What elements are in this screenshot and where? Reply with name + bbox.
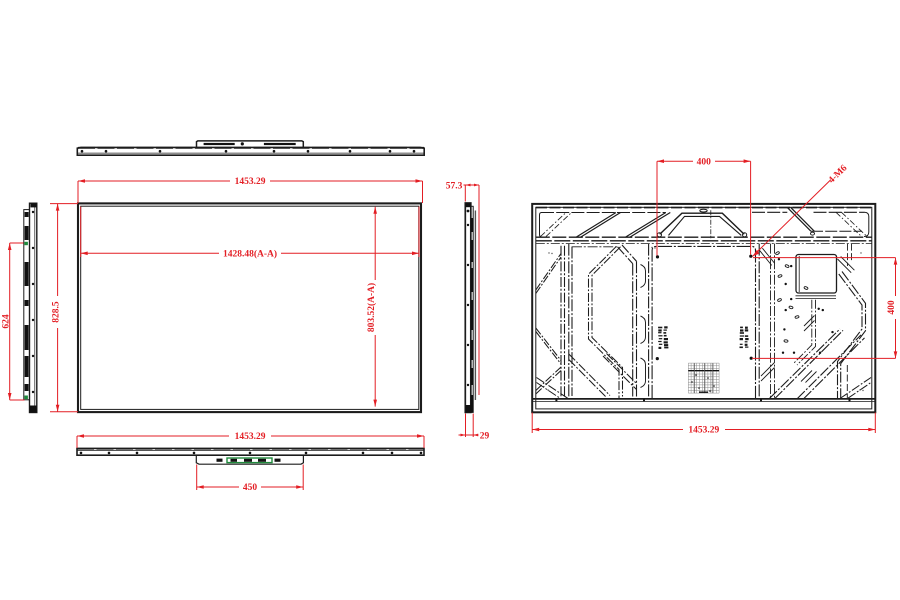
svg-text:803.52(A-A): 803.52(A-A) <box>366 283 377 332</box>
svg-text:1453.29: 1453.29 <box>235 432 266 442</box>
svg-text:400: 400 <box>697 157 712 167</box>
svg-text:450: 450 <box>243 483 258 493</box>
svg-text:1428.48(A-A): 1428.48(A-A) <box>223 249 277 260</box>
svg-text:57.3: 57.3 <box>446 181 463 191</box>
svg-text:1453.29: 1453.29 <box>688 426 719 436</box>
svg-text:1453.29: 1453.29 <box>235 177 266 187</box>
svg-text:29: 29 <box>480 432 490 442</box>
svg-text:400: 400 <box>887 300 897 315</box>
svg-text:624: 624 <box>1 314 11 329</box>
svg-text:828.5: 828.5 <box>51 301 61 323</box>
